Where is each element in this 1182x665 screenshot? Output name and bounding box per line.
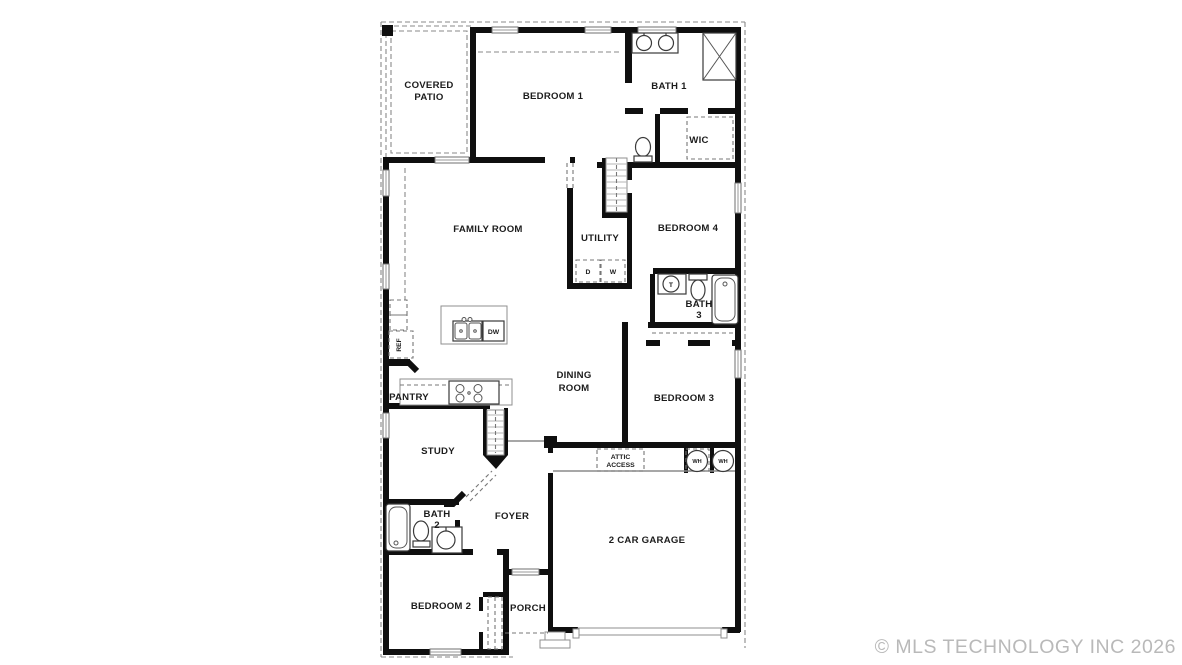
porch-steps <box>540 632 570 648</box>
bathtub-icon <box>386 504 410 551</box>
label-dishwasher: DW <box>488 329 500 336</box>
label-bath2-1: BATH <box>424 509 451 520</box>
coat-closet <box>487 410 504 455</box>
label-bath3-2: 3 <box>696 310 702 321</box>
label-study: STUDY <box>421 446 455 457</box>
window <box>383 413 389 438</box>
label-utility: UTILITY <box>581 233 619 244</box>
page-background <box>0 0 1182 665</box>
window <box>383 170 389 196</box>
kitchen-island <box>441 306 507 344</box>
floor-plan: COVERED PATIO BEDROOM 1 BATH 1 WIC FAMIL… <box>0 0 1182 665</box>
label-pantry: PANTRY <box>389 392 429 403</box>
label-dryer: D <box>586 269 591 276</box>
label-bedroom4: BEDROOM 4 <box>658 223 719 234</box>
label-covered-patio-2: PATIO <box>414 92 443 103</box>
label-dining-2: ROOM <box>559 383 590 394</box>
label-bedroom1: BEDROOM 1 <box>523 91 584 102</box>
label-family-room: FAMILY ROOM <box>453 224 522 235</box>
shower-icon <box>703 33 736 80</box>
window <box>735 350 741 378</box>
linen-closet <box>606 158 627 212</box>
watermark: © MLS TECHNOLOGY INC 2026 <box>875 636 1176 658</box>
label-washer: W <box>610 269 617 276</box>
label-attic-2: ACCESS <box>606 462 635 469</box>
window <box>638 27 676 33</box>
window <box>430 649 461 655</box>
label-water-heater-1: WH <box>692 459 701 465</box>
label-bedroom2: BEDROOM 2 <box>411 601 471 612</box>
patio-post <box>382 25 393 36</box>
toilet-icon <box>413 521 430 547</box>
label-water-heater-2: WH <box>718 459 727 465</box>
bathtub-icon <box>712 275 738 324</box>
label-porch: PORCH <box>510 603 546 614</box>
label-wic: WIC <box>689 135 708 146</box>
label-bath3-1: BATH <box>686 299 713 310</box>
window <box>383 264 389 289</box>
front-door <box>512 569 539 575</box>
toilet-icon <box>634 138 652 163</box>
window <box>735 183 741 213</box>
double-vanity-icon <box>632 33 678 53</box>
label-foyer: FOYER <box>495 511 529 522</box>
label-bath1: BATH 1 <box>651 81 687 92</box>
label-bedroom3: BEDROOM 3 <box>654 393 714 404</box>
label-refrigerator: REF <box>396 338 403 351</box>
patio-slider-door <box>435 157 469 163</box>
label-covered-patio-1: COVERED <box>404 80 453 91</box>
label-attic-1: ATTIC <box>611 454 631 461</box>
label-dining-1: DINING <box>556 370 591 381</box>
label-garage: 2 CAR GARAGE <box>609 535 686 546</box>
window <box>585 27 611 33</box>
label-bath2-2: 2 <box>434 520 440 531</box>
window <box>492 27 518 33</box>
